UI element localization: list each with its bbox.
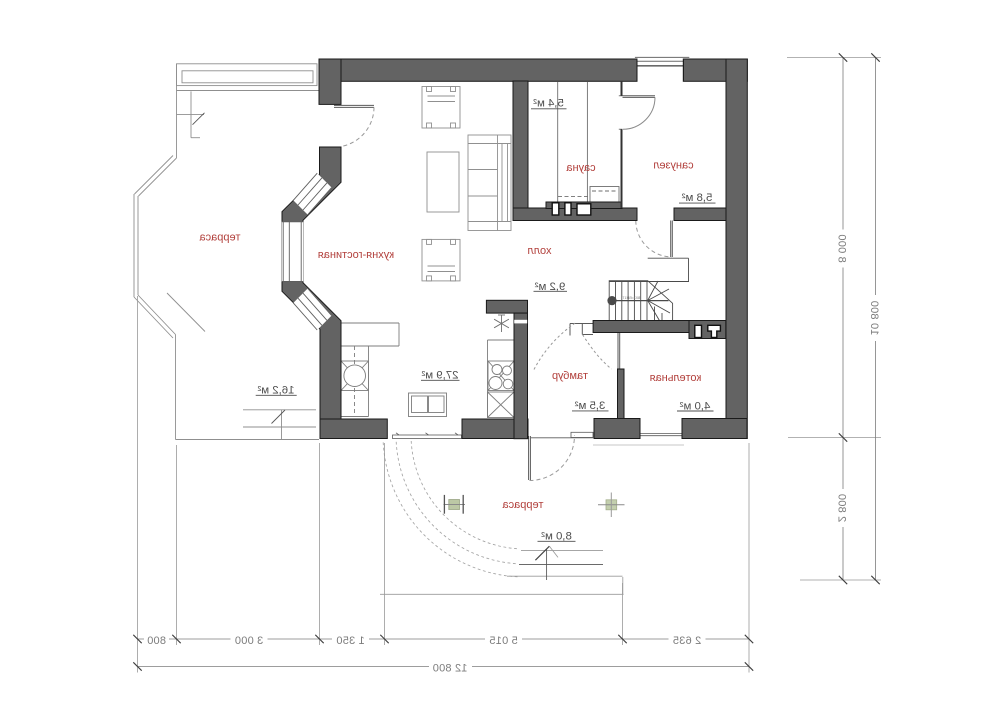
svg-text:27,9 м²: 27,9 м² (421, 370, 458, 382)
svg-text:холл: холл (527, 245, 551, 257)
svg-text:сауна: сауна (566, 162, 596, 174)
svg-text:16,2 м²: 16,2 м² (257, 385, 294, 397)
svg-text:10 800: 10 800 (868, 301, 880, 336)
svg-text:3,5 м²: 3,5 м² (574, 400, 605, 412)
svg-text:тамбур: тамбур (552, 370, 588, 382)
svg-text:котельная: котельная (650, 372, 702, 384)
svg-text:8,0 м²: 8,0 м² (541, 531, 572, 543)
svg-text:кухня-гостиная: кухня-гостиная (318, 249, 394, 261)
svg-text:санузел: санузел (653, 159, 693, 171)
svg-text:3 000: 3 000 (235, 635, 264, 647)
svg-text:терраса: терраса (502, 499, 544, 511)
svg-text:2 635: 2 635 (673, 635, 702, 647)
svg-text:800: 800 (147, 635, 166, 647)
svg-text:ВХ3=ВН17: ВХ3=ВН17 (623, 296, 641, 300)
svg-text:5,8 м²: 5,8 м² (681, 192, 712, 204)
svg-text:4,0 м²: 4,0 м² (679, 400, 710, 412)
svg-text:2 800: 2 800 (836, 494, 848, 523)
svg-text:12 800: 12 800 (433, 663, 468, 675)
svg-text:1 350: 1 350 (336, 635, 365, 647)
svg-text:5,4 м²: 5,4 м² (533, 98, 564, 110)
svg-text:8 000: 8 000 (836, 234, 848, 263)
svg-text:5 015: 5 015 (489, 635, 518, 647)
svg-text:терраса: терраса (199, 232, 241, 244)
